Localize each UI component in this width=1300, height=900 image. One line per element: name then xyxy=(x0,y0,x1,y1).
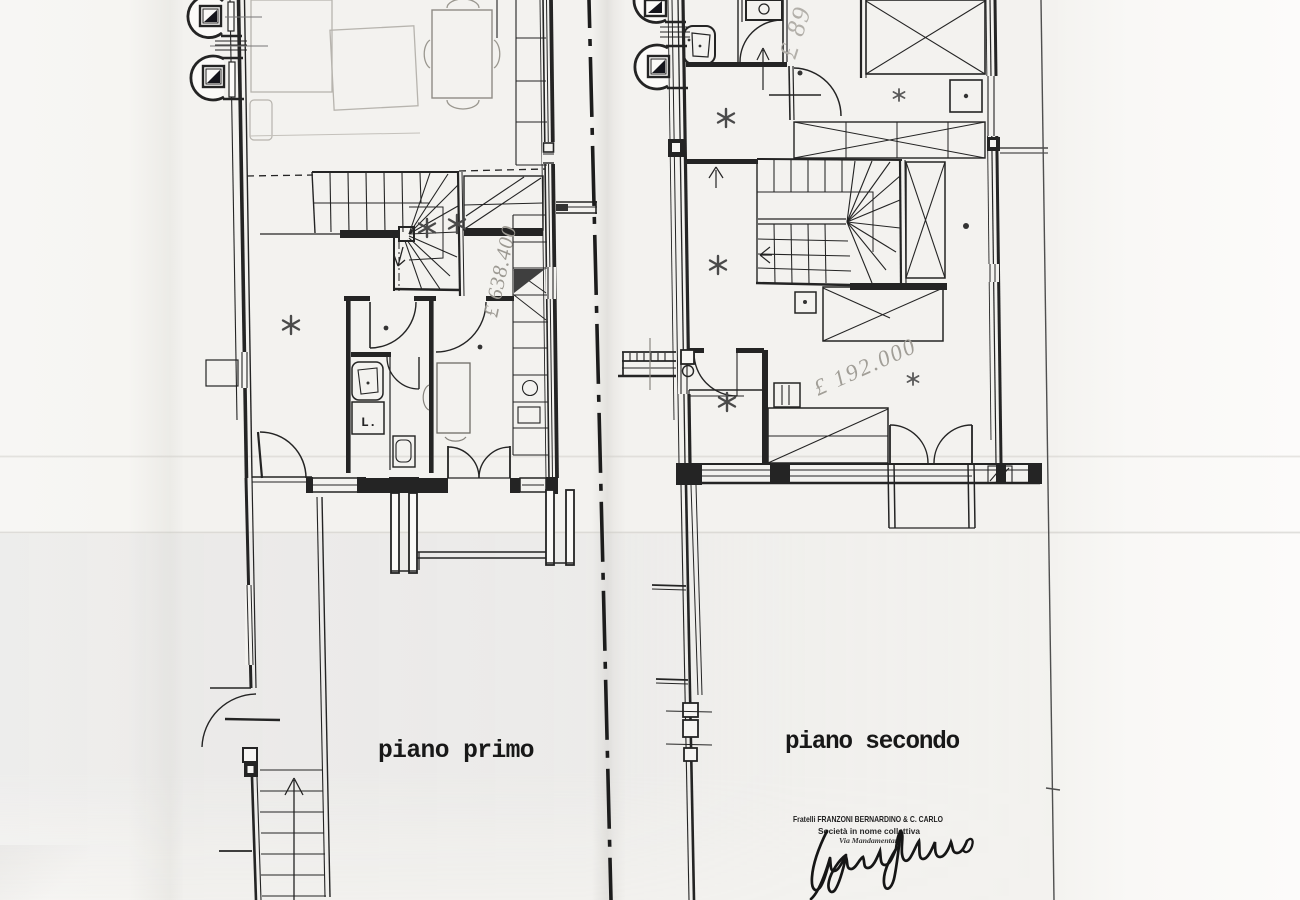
svg-text:£ 192.000: £ 192.000 xyxy=(810,333,921,401)
svg-text:Società in nome collettiva: Società in nome collettiva xyxy=(818,827,921,836)
svg-text:L.: L. xyxy=(361,415,377,430)
svg-text:piano secondo: piano secondo xyxy=(785,727,959,756)
svg-text:Fratelli FRANZONI BERNARDINO &: Fratelli FRANZONI BERNARDINO & C. CARLO xyxy=(793,815,944,824)
svg-text:piano primo: piano primo xyxy=(378,736,534,765)
svg-text:£ 89: £ 89 xyxy=(773,2,817,62)
svg-text:Via Mandamentana: Via Mandamentana xyxy=(839,837,904,845)
